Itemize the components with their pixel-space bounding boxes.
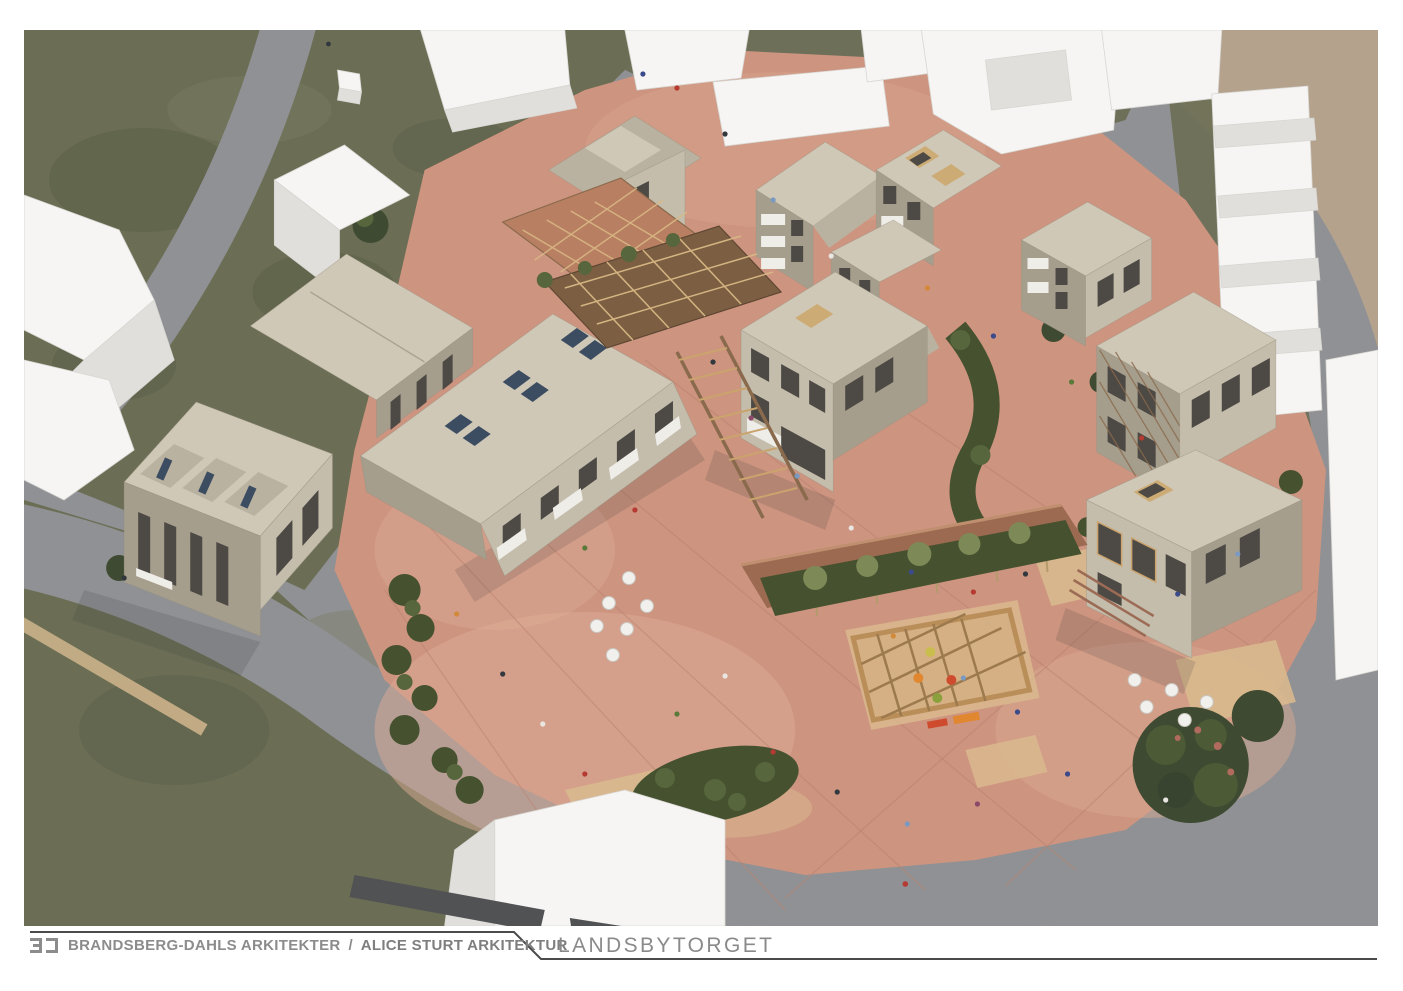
aerial-render bbox=[24, 30, 1378, 926]
project-title: LANDSBYTORGET bbox=[558, 934, 774, 958]
aerial-render-canvas bbox=[24, 30, 1378, 926]
presentation-sheet: BRANDSBERG-DAHLS ARKITEKTER / ALICE STUR… bbox=[0, 0, 1403, 991]
firm-logo-icon bbox=[30, 938, 60, 953]
firm-name-primary: BRANDSBERG-DAHLS ARKITEKTER bbox=[68, 937, 341, 954]
firm-credit: BRANDSBERG-DAHLS ARKITEKTER / ALICE STUR… bbox=[30, 937, 568, 954]
firm-name-secondary: ALICE STURT ARKITEKTUR bbox=[361, 937, 568, 954]
firm-separator: / bbox=[349, 937, 353, 954]
